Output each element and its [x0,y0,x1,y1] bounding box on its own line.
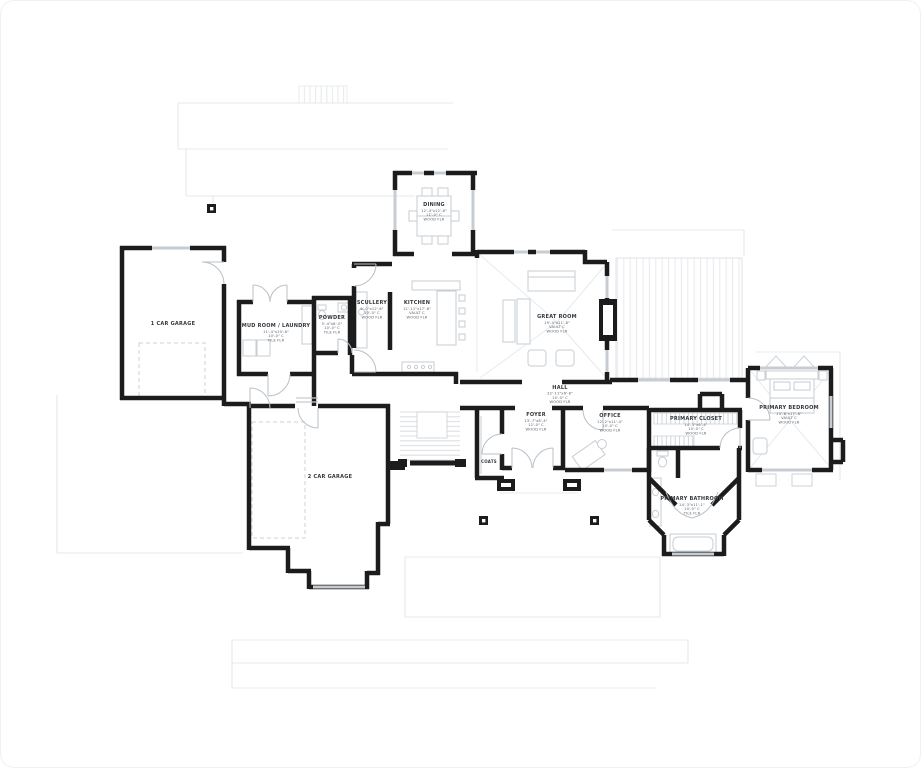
room-name: FOYER [526,412,546,418]
room-floor: WOOD FLR [407,315,428,319]
room-floor: WOOD FLR [547,329,568,333]
room-name: PRIMARY BEDROOM [759,405,819,411]
garage-wall-stub [388,461,405,470]
room-name: OFFICE [599,413,621,419]
room-label-one-car-garage: 1 CAR GARAGE [151,321,196,327]
room-name: COATS [481,459,497,464]
room-label-coats: COATS [481,459,497,464]
floor-plan-image: 1 CAR GARAGE 2 CAR GARAGE MUD ROOM / LAU… [0,0,921,768]
room-name: 2 CAR GARAGE [308,474,353,480]
door-garage2-entry [298,408,318,428]
room-name: MUD ROOM / LAUNDRY [242,323,311,329]
fireplace-icon [599,299,617,341]
room-name: POWDER [319,315,345,321]
room-label-dining: DINING 12'-4"x12'-6" 11'-0" C WOOD FLR [421,202,447,221]
bathtub [670,534,716,554]
room-floor: WOOD FLR [550,400,571,404]
room-floor: TILE FLR [683,511,701,515]
door-mudroom-double [253,285,287,302]
room-label-kitchen: KITCHEN 12'-11"x17'-8" VAULT C WOOD FLR [403,300,431,319]
porch-column [207,204,216,213]
door-mudroom-hall [268,374,290,396]
room-label-great-room: GREAT ROOM 19'-4"x21'-8" VAULT C WOOD FL… [537,314,577,333]
room-floor: WOOD FLR [779,420,800,424]
room-name: DINING [423,202,445,208]
room-label-mud-room: MUD ROOM / LAUNDRY 11'-4"x10'-8" 10'-0" … [242,323,311,342]
room-name: PRIMARY BATHROOM [660,496,723,502]
room-floor: WOOD FLR [362,315,383,319]
top-deck-boards [299,86,347,103]
door-scullery-top [354,264,376,286]
door-front-double [512,448,553,468]
rear-deck [616,258,742,378]
door-garage1 [202,262,224,284]
room-label-two-car-garage: 2 CAR GARAGE [308,474,353,480]
porch-column [479,516,488,525]
room-name: KITCHEN [404,300,430,306]
bedroom-chair [753,438,767,454]
walls [120,171,843,589]
door-primary-closet [720,428,740,448]
room-label-hall: HALL 32'-11"x6'-8" 10'-0" C WOOD FLR [547,385,573,404]
room-label-primary-closet: PRIMARY CLOSET 14'-3"x6'-4" 10'-0" C WOO… [670,416,722,435]
floor-plan: 1 CAR GARAGE 2 CAR GARAGE MUD ROOM / LAU… [0,0,921,768]
door-scullery-bottom [354,350,376,372]
room-label-office: OFFICE 12'-2"x11'-4" 10'-0" C WOOD FLR [597,413,623,432]
porch-piers [497,479,581,491]
door-coats [482,434,502,454]
bath-toilet [657,451,668,467]
room-label-primary-bedroom: PRIMARY BEDROOM 13'-6"x17'-8" VAULT C WO… [759,405,819,424]
room-floor: WOOD FLR [600,428,621,432]
room-name: SCULLERY [357,300,387,306]
room-name: GREAT ROOM [537,314,577,320]
kitchen-range [402,362,434,372]
office-desk [572,440,606,471]
room-name: 1 CAR GARAGE [151,321,196,327]
room-floor: TILE FLR [323,330,341,334]
porch-column [590,516,599,525]
room-name: HALL [552,385,568,391]
room-floor: WOOD FLR [424,217,445,221]
room-floor: TILE FLR [267,338,285,342]
room-floor: WOOD FLR [686,431,707,435]
stairs [398,411,466,467]
room-label-scullery: SCULLERY 6'-0"x12'-6" 10'-0" C WOOD FLR [357,300,387,319]
room-label-powder: POWDER 5'-4"x8'-0" 10'-0" C TILE FLR [319,315,345,334]
walls-two-car-garage [249,404,390,589]
room-floor: WOOD FLR [526,427,547,431]
room-label-foyer: FOYER 13'-7"x8'-4" 12'-0" C WOOD FLR [524,412,547,431]
room-name: PRIMARY CLOSET [670,416,722,422]
